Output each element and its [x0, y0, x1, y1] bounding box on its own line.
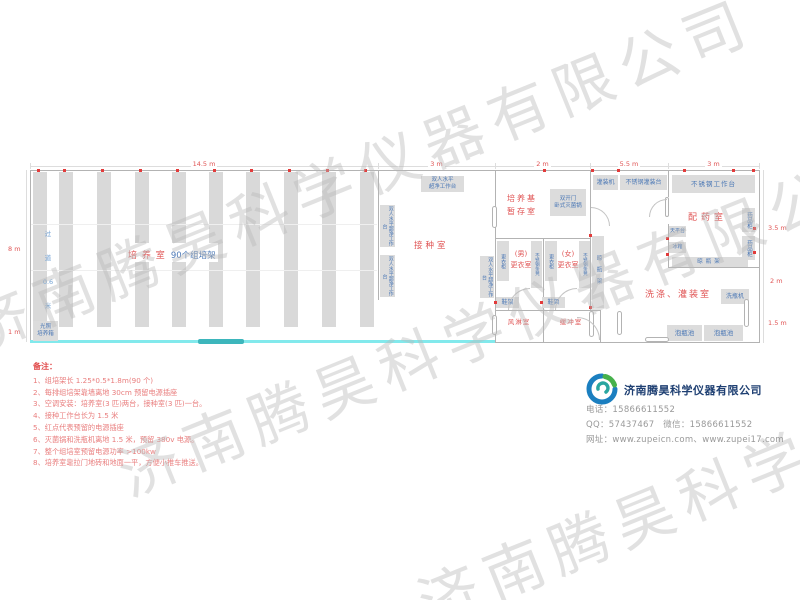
- outlet-dot: [37, 169, 40, 172]
- wall: [668, 267, 760, 268]
- wall: [590, 170, 591, 311]
- culture-room-name: 培 养 室: [128, 251, 166, 261]
- filling-machine-box: 灌装机: [593, 175, 618, 190]
- company-name: 济南腾昊科学仪器有限公司: [624, 382, 762, 398]
- wall: [543, 238, 544, 342]
- balance-table-box: 天平台: [669, 226, 686, 237]
- dim-label-pharmacy: 3 m: [668, 160, 759, 168]
- gridline: [31, 224, 377, 225]
- door-leaf: [492, 206, 497, 228]
- note-item: 7、整个组培室预留电源功率 >100kw: [33, 446, 206, 458]
- worktable-box: 不锈钢工作台: [672, 175, 755, 193]
- outlet-dot: [666, 237, 669, 240]
- bench-box: 不锈钢条凳: [531, 241, 542, 288]
- fridge-box: 冰箱: [669, 242, 686, 253]
- dim-label-culture: 14.5 m: [30, 160, 378, 168]
- dim-label-right-top: 3.5 m: [766, 224, 789, 232]
- outlet-dot: [617, 169, 620, 172]
- note-item: 2、每排组培架靠墙离地 30cm 预留电源插座: [33, 387, 206, 399]
- locker-box: 更衣柜: [497, 241, 509, 281]
- bottle-rack-box: 晾瓶架: [672, 257, 748, 267]
- dim-label-washing: 5.5 m: [590, 160, 668, 168]
- clean-bench-box: 双人水平超净工作台: [480, 256, 494, 298]
- dim-label-left-bottom: 1 m: [6, 328, 23, 336]
- inoculation-room-label: 接种室: [414, 239, 449, 251]
- notes-title: 备注：: [33, 361, 206, 373]
- dim-label-left-main: 8 m: [6, 245, 23, 253]
- outlet-dot: [139, 169, 142, 172]
- outlet-dot: [213, 169, 216, 172]
- wall: [495, 238, 591, 239]
- outlet-dot: [683, 169, 686, 172]
- notes-block: 备注： 1、组培架长 1.25*0.5*1.8m(90 个) 2、每排组培架靠墙…: [33, 361, 206, 469]
- soak-pool-box: 泡瓶池: [667, 325, 702, 341]
- note-item: 4、接种工作台长为 1.5 米: [33, 410, 206, 422]
- locker-box: 更衣柜: [545, 241, 557, 281]
- outlet-dot: [753, 227, 756, 230]
- wall: [759, 170, 760, 343]
- door-arc: [591, 207, 610, 226]
- clean-bench-box: 双人水平 超净工作台: [421, 176, 464, 192]
- sliding-door: [198, 339, 244, 344]
- washing-room-label: 洗涤、灌装室: [645, 287, 711, 300]
- clean-bench-box: 双人水平超净工作台: [380, 205, 395, 247]
- wall: [495, 310, 601, 311]
- floorplan-canvas: 济南腾昊科学仪器有限公司 济南腾昊科学仪器有限公司 济南腾昊科学仪器有限公司 1…: [0, 0, 800, 600]
- outlet-dot: [752, 169, 755, 172]
- door-arc: [508, 288, 530, 310]
- soak-pool-box: 泡瓶池: [704, 325, 743, 341]
- dim-label-right-mid: 2 m: [768, 277, 785, 285]
- company-website: 网址：www.zupeicn.com、www.zupei17.com: [586, 433, 784, 445]
- note-item: 5、红点代表预留的电源插座: [33, 422, 206, 434]
- outlet-dot: [288, 169, 291, 172]
- outlet-dot: [176, 169, 179, 172]
- rack-bar: [284, 172, 298, 327]
- door-leaf: [645, 337, 669, 342]
- note-item: 3、空调安装：培养室(3 匹)两台，接种室(3 匹)一台。: [33, 398, 206, 410]
- clean-bench-box: 双人水平超净工作台: [380, 255, 395, 297]
- bottom-wall: [30, 340, 495, 343]
- note-item: 6、灭菌锅和洗瓶机离地 1.5 米，预留 380v 电源。: [33, 434, 206, 446]
- wall: [495, 342, 760, 343]
- rack-bar: [59, 172, 73, 327]
- dimension-line-left: [26, 170, 27, 342]
- note-item: 1、组培架长 1.25*0.5*1.8m(90 个): [33, 375, 206, 387]
- outlet-dot: [732, 169, 735, 172]
- filling-table-box: 不锈钢灌装台: [620, 175, 667, 190]
- lighted-incubator-box: 光照 培养箱: [33, 321, 58, 341]
- rack-bar: [360, 172, 374, 327]
- wall: [378, 170, 379, 300]
- aisle-note: 过 道 0.6 米: [40, 222, 56, 318]
- company-logo-icon: [586, 373, 618, 405]
- outlet-dot: [589, 234, 592, 237]
- door-arc: [649, 199, 667, 217]
- wall: [668, 170, 669, 197]
- wall: [30, 170, 31, 342]
- door-leaf: [492, 315, 497, 335]
- door-arc: [555, 288, 577, 310]
- dim-label-inoculation: 3 m: [378, 160, 495, 168]
- outlet-dot: [494, 301, 497, 304]
- rack-bar: [246, 172, 260, 327]
- outlet-dot: [364, 169, 367, 172]
- culture-room-rack-count: 90个组培架: [171, 251, 216, 261]
- dimension-line-right: [763, 170, 764, 343]
- outlet-dot: [101, 169, 104, 172]
- door-leaf: [744, 299, 749, 327]
- outlet-dot: [63, 169, 66, 172]
- wall: [600, 310, 601, 343]
- outlet-dot: [543, 169, 546, 172]
- bench-box: 不锈钢条凳: [579, 241, 590, 288]
- company-qq-wechat: QQ：57437467 微信：15866611552: [586, 418, 752, 430]
- rack-bar: [97, 172, 111, 327]
- rack-bar: [322, 172, 336, 327]
- outlet-dot: [753, 251, 756, 254]
- gridline: [31, 270, 377, 271]
- dim-label-storage: 2 m: [495, 160, 590, 168]
- outlet-dot: [326, 169, 329, 172]
- dim-tick: [759, 163, 760, 169]
- outlet-dot: [540, 301, 543, 304]
- outlet-dot: [250, 169, 253, 172]
- company-phone: 电话：15866611552: [586, 403, 675, 415]
- note-item: 8、培养室靠拉门地砖和地面一平，方便小推车推送。: [33, 457, 206, 469]
- outlet-dot: [591, 169, 594, 172]
- culture-room-label: 培 养 室 90个组培架: [126, 243, 218, 262]
- outlet-dot: [589, 306, 592, 309]
- pharmacy-room-label: 配药室: [688, 210, 727, 223]
- dim-label-right-bottom: 1.5 m: [766, 319, 789, 327]
- autoclave-box: 双开门 卧式灭菌锅: [550, 189, 586, 216]
- air-shower-room-label: 风淋室: [497, 316, 541, 326]
- outlet-dot: [666, 253, 669, 256]
- drying-rack-box: 晾瓶架: [592, 236, 604, 308]
- door-leaf: [617, 311, 622, 335]
- storage-room-label: 培养基 暂存室: [502, 192, 542, 218]
